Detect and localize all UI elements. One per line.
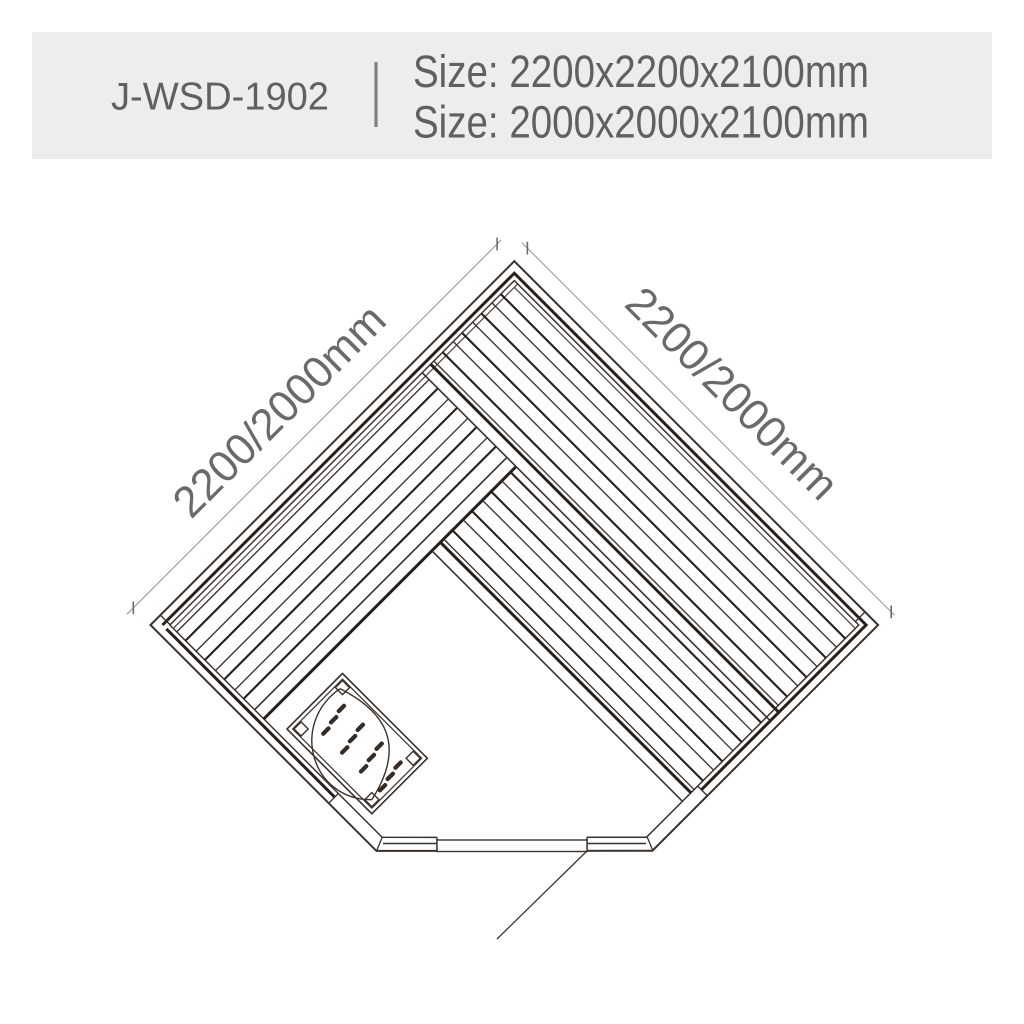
- svg-text:Size: 2200x2200x2100mm: Size: 2200x2200x2100mm: [413, 46, 869, 97]
- svg-text:J-WSD-1902: J-WSD-1902: [111, 76, 329, 119]
- svg-text:Size: 2000x2000x2100mm: Size: 2000x2000x2100mm: [413, 97, 869, 148]
